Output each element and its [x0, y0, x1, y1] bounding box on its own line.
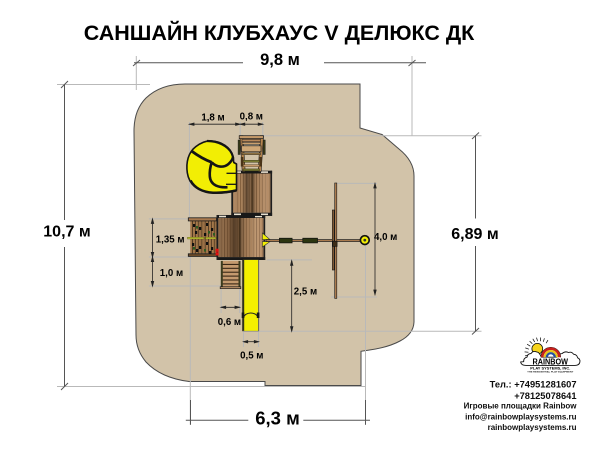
svg-text:4,0 м: 4,0 м: [374, 232, 397, 243]
svg-text:6,89 м: 6,89 м: [451, 226, 498, 243]
svg-text:rainbowplaysystems.ru: rainbowplaysystems.ru: [488, 423, 577, 432]
svg-text:0,8 м: 0,8 м: [240, 111, 263, 122]
svg-text:PLAY SYSTEMS, INC.: PLAY SYSTEMS, INC.: [530, 367, 570, 371]
svg-text:info@rainbowplaysystems.ru: info@rainbowplaysystems.ru: [465, 413, 576, 422]
svg-text:САНШАЙН КЛУБХАУС V ДЕЛЮКС ДК: САНШАЙН КЛУБХАУС V ДЕЛЮКС ДК: [84, 20, 475, 45]
svg-text:RAINBOW: RAINBOW: [533, 358, 569, 367]
svg-text:Тел.: +74951281607: Тел.: +74951281607: [490, 379, 577, 389]
svg-text:1,0 м: 1,0 м: [160, 268, 183, 279]
svg-text:0,6 м: 0,6 м: [218, 317, 241, 328]
svg-text:1,35 м: 1,35 м: [156, 234, 185, 245]
svg-text:10,7 м: 10,7 м: [43, 224, 90, 241]
svg-text:2,5 м: 2,5 м: [294, 287, 317, 298]
svg-text:THE RESIDENTIAL PLAY EQUIPMENT: THE RESIDENTIAL PLAY EQUIPMENT: [527, 371, 574, 374]
svg-text:0,5 м: 0,5 м: [240, 351, 263, 362]
svg-text:+78125078641: +78125078641: [514, 391, 576, 401]
svg-text:9,8 м: 9,8 м: [260, 51, 300, 69]
svg-text:1,8 м: 1,8 м: [201, 112, 224, 123]
svg-text:6,3 м: 6,3 м: [255, 408, 300, 429]
svg-text:Игровые площадки Rainbow: Игровые площадки Rainbow: [464, 401, 578, 410]
